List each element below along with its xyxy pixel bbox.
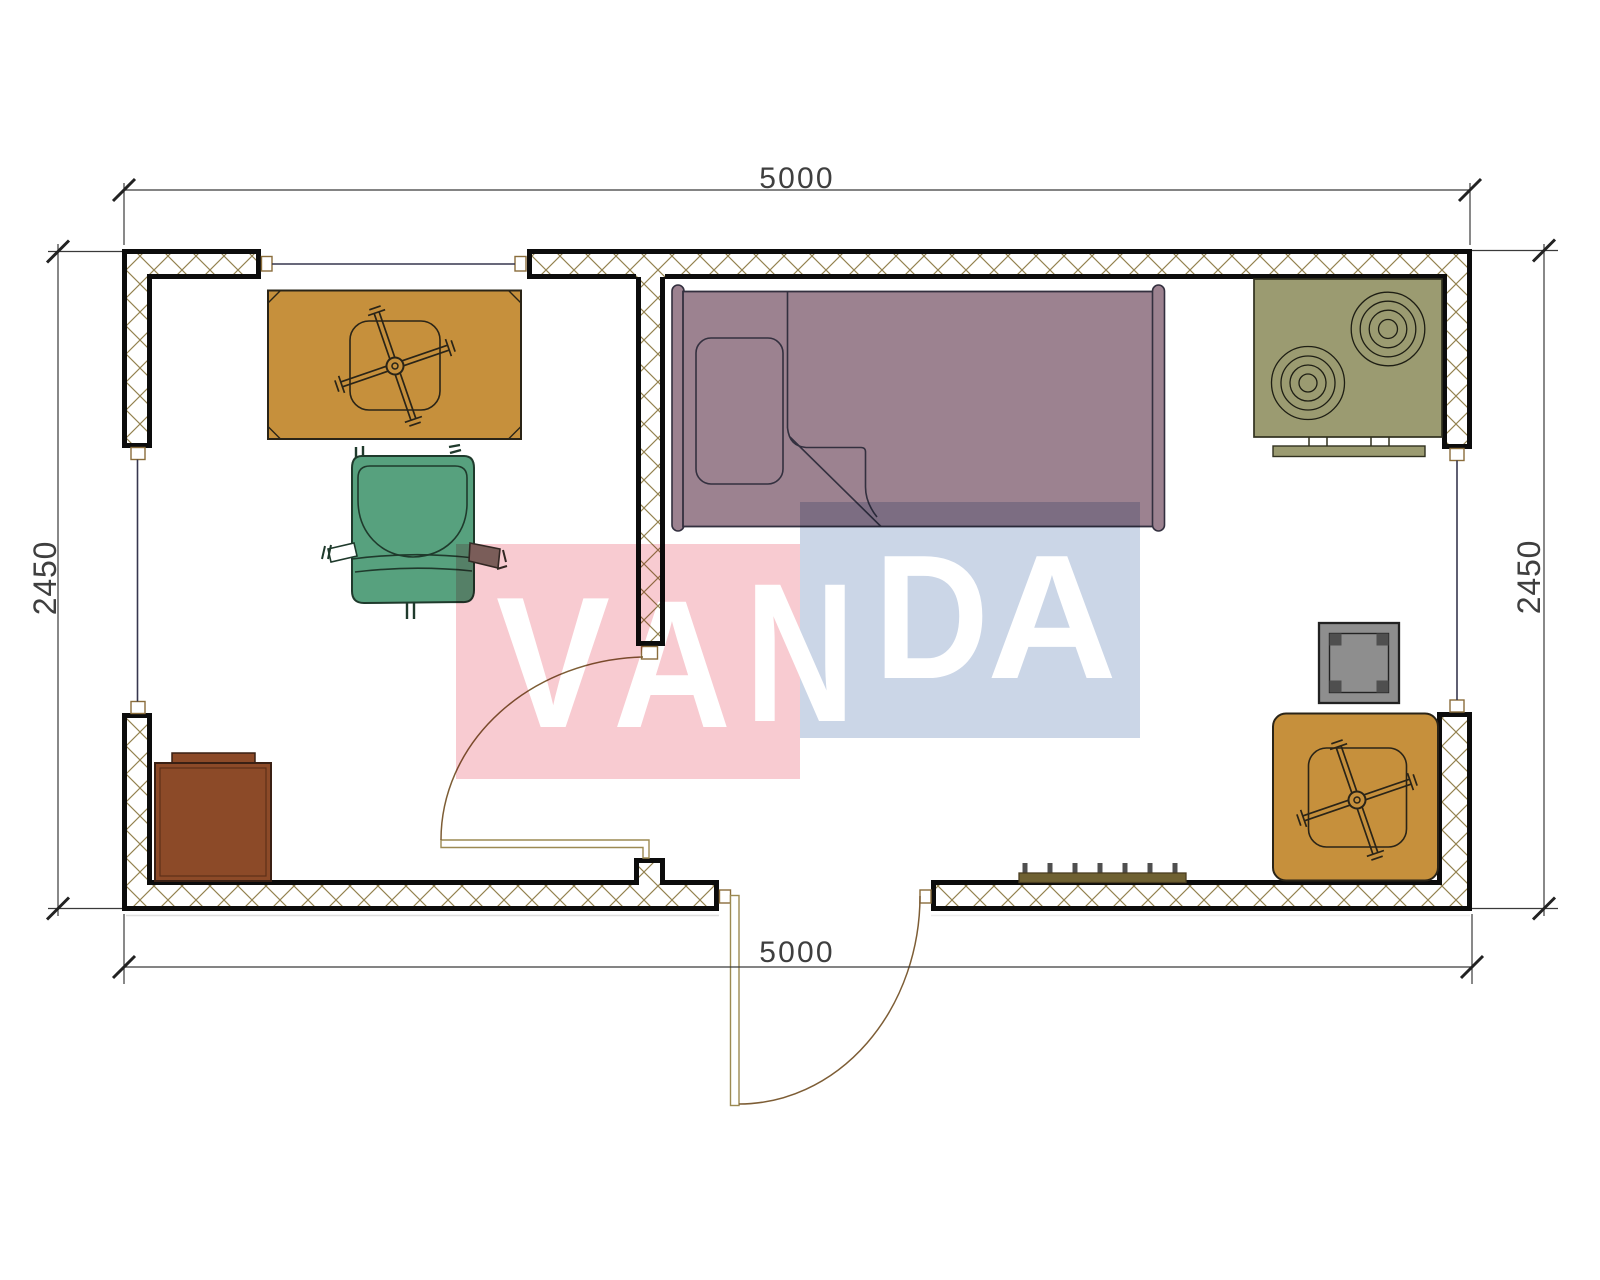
svg-text:2450: 2450	[1511, 540, 1547, 614]
svg-text:2450: 2450	[27, 541, 63, 615]
svg-text:5000: 5000	[759, 162, 835, 195]
svg-text:5000: 5000	[759, 936, 835, 969]
